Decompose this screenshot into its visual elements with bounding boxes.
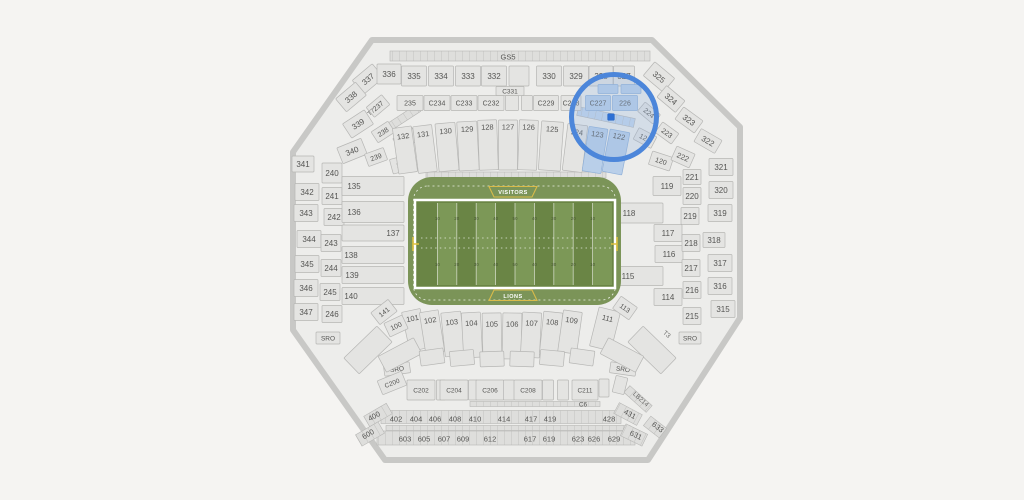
section-blank[interactable] xyxy=(569,348,595,366)
section-341[interactable] xyxy=(292,156,314,172)
section-115[interactable] xyxy=(617,267,663,286)
section-334[interactable] xyxy=(429,66,454,86)
section-116[interactable] xyxy=(655,246,683,263)
section-244[interactable] xyxy=(321,260,341,277)
yard-number: 50 xyxy=(512,262,518,267)
yard-number: 40 xyxy=(493,262,499,267)
section-219[interactable] xyxy=(681,208,699,225)
section-blank[interactable] xyxy=(506,96,519,111)
section-137[interactable] xyxy=(342,225,404,241)
yard-number: 10 xyxy=(590,262,596,267)
yard-number: 40 xyxy=(532,262,538,267)
seatmap-canvas: 337336335334333332330329328327325235C234… xyxy=(0,0,1024,500)
section-218[interactable] xyxy=(682,235,700,252)
section-342[interactable] xyxy=(295,184,319,201)
section-blank[interactable] xyxy=(539,349,564,366)
section-blank[interactable] xyxy=(522,96,533,111)
section-126[interactable] xyxy=(518,120,539,171)
section-136[interactable] xyxy=(342,202,404,223)
yard-number: 30 xyxy=(551,216,557,221)
section-335[interactable] xyxy=(402,66,427,86)
section-C229[interactable] xyxy=(534,96,559,111)
suite-strip[interactable] xyxy=(470,402,600,407)
section-C208[interactable] xyxy=(514,380,542,400)
yard-number: 20 xyxy=(454,262,460,267)
section-blank[interactable] xyxy=(558,380,569,400)
section-blank[interactable] xyxy=(449,349,474,366)
section-125[interactable] xyxy=(538,121,563,171)
section-C232[interactable] xyxy=(478,96,504,111)
section-345[interactable] xyxy=(295,256,319,273)
section-346[interactable] xyxy=(294,280,318,297)
section-140[interactable] xyxy=(342,288,404,305)
section-138[interactable] xyxy=(342,247,404,264)
suite-strip[interactable] xyxy=(390,51,650,61)
yard-number: 50 xyxy=(512,216,518,221)
section-C202[interactable] xyxy=(407,380,435,400)
section-344[interactable] xyxy=(297,231,321,248)
yard-number: 30 xyxy=(551,262,557,267)
section-241[interactable] xyxy=(322,188,342,205)
suite-strip[interactable] xyxy=(377,431,635,445)
yard-number: 10 xyxy=(435,262,441,267)
yard-number: 10 xyxy=(435,216,441,221)
section-C331[interactable] xyxy=(496,87,524,96)
section-C206[interactable] xyxy=(476,380,504,400)
section-243[interactable] xyxy=(321,235,341,252)
section-117[interactable] xyxy=(654,225,682,242)
section-135[interactable] xyxy=(342,177,404,196)
section-blank[interactable] xyxy=(504,380,515,400)
section-blank[interactable] xyxy=(510,351,535,367)
section-320[interactable] xyxy=(709,182,733,199)
section-332[interactable] xyxy=(482,66,507,86)
section-blank[interactable] xyxy=(599,379,609,397)
football-field: 101020203030404050504040303020201010VISI… xyxy=(408,177,621,305)
section-130[interactable] xyxy=(435,122,459,172)
section-blank[interactable] xyxy=(480,351,505,367)
section-118[interactable] xyxy=(617,203,663,223)
section-240[interactable] xyxy=(322,163,342,183)
section-SRO[interactable] xyxy=(679,332,701,344)
section-336[interactable] xyxy=(377,64,401,84)
section-221[interactable] xyxy=(683,170,701,185)
section-C204[interactable] xyxy=(440,380,468,400)
section-217[interactable] xyxy=(682,260,700,277)
section-blank[interactable] xyxy=(543,380,554,400)
section-318[interactable] xyxy=(703,233,725,248)
visitors-label: VISITORS xyxy=(498,190,528,196)
section-246[interactable] xyxy=(322,306,342,323)
section-119[interactable] xyxy=(653,177,681,196)
section-blank[interactable] xyxy=(509,66,529,86)
section-245[interactable] xyxy=(320,284,340,301)
lions-label: LIONS xyxy=(503,294,522,300)
yard-number: 10 xyxy=(590,216,596,221)
section-107[interactable] xyxy=(520,312,541,358)
section-C211[interactable] xyxy=(572,380,598,400)
section-139[interactable] xyxy=(342,267,404,284)
section-128[interactable] xyxy=(478,120,499,171)
section-242[interactable] xyxy=(324,209,344,226)
field-stripe xyxy=(593,203,612,285)
section-215[interactable] xyxy=(683,308,701,325)
section-319[interactable] xyxy=(708,205,732,222)
yard-number: 40 xyxy=(493,216,499,221)
yard-number: 20 xyxy=(571,262,577,267)
section-114[interactable] xyxy=(654,289,682,306)
section-127[interactable] xyxy=(499,120,518,170)
section-blank[interactable] xyxy=(419,348,445,366)
suite-strip[interactable] xyxy=(381,411,621,424)
yard-number: 20 xyxy=(571,216,577,221)
yard-number: 30 xyxy=(474,216,480,221)
section-317[interactable] xyxy=(708,255,732,272)
section-343[interactable] xyxy=(294,205,318,222)
section-SRO[interactable] xyxy=(316,332,340,344)
yard-number: 20 xyxy=(454,216,460,221)
section-333[interactable] xyxy=(456,66,481,86)
section-235[interactable] xyxy=(397,96,423,111)
selection-overlay xyxy=(572,75,657,160)
section-C233[interactable] xyxy=(451,96,477,111)
seat-marker[interactable] xyxy=(608,114,615,121)
section-129[interactable] xyxy=(457,121,480,171)
section-316[interactable] xyxy=(708,278,732,295)
stadium-seat-map: 337336335334333332330329328327325235C234… xyxy=(0,0,1024,500)
section-220[interactable] xyxy=(683,188,701,205)
section-347[interactable] xyxy=(294,304,318,321)
section-216[interactable] xyxy=(683,282,701,299)
yard-number: 40 xyxy=(532,216,538,221)
section-321[interactable] xyxy=(709,159,733,176)
section-315[interactable] xyxy=(711,301,735,318)
suite-strip[interactable] xyxy=(386,426,630,431)
yard-number: 30 xyxy=(474,262,480,267)
section-C234[interactable] xyxy=(424,96,450,111)
section-330[interactable] xyxy=(537,66,562,86)
